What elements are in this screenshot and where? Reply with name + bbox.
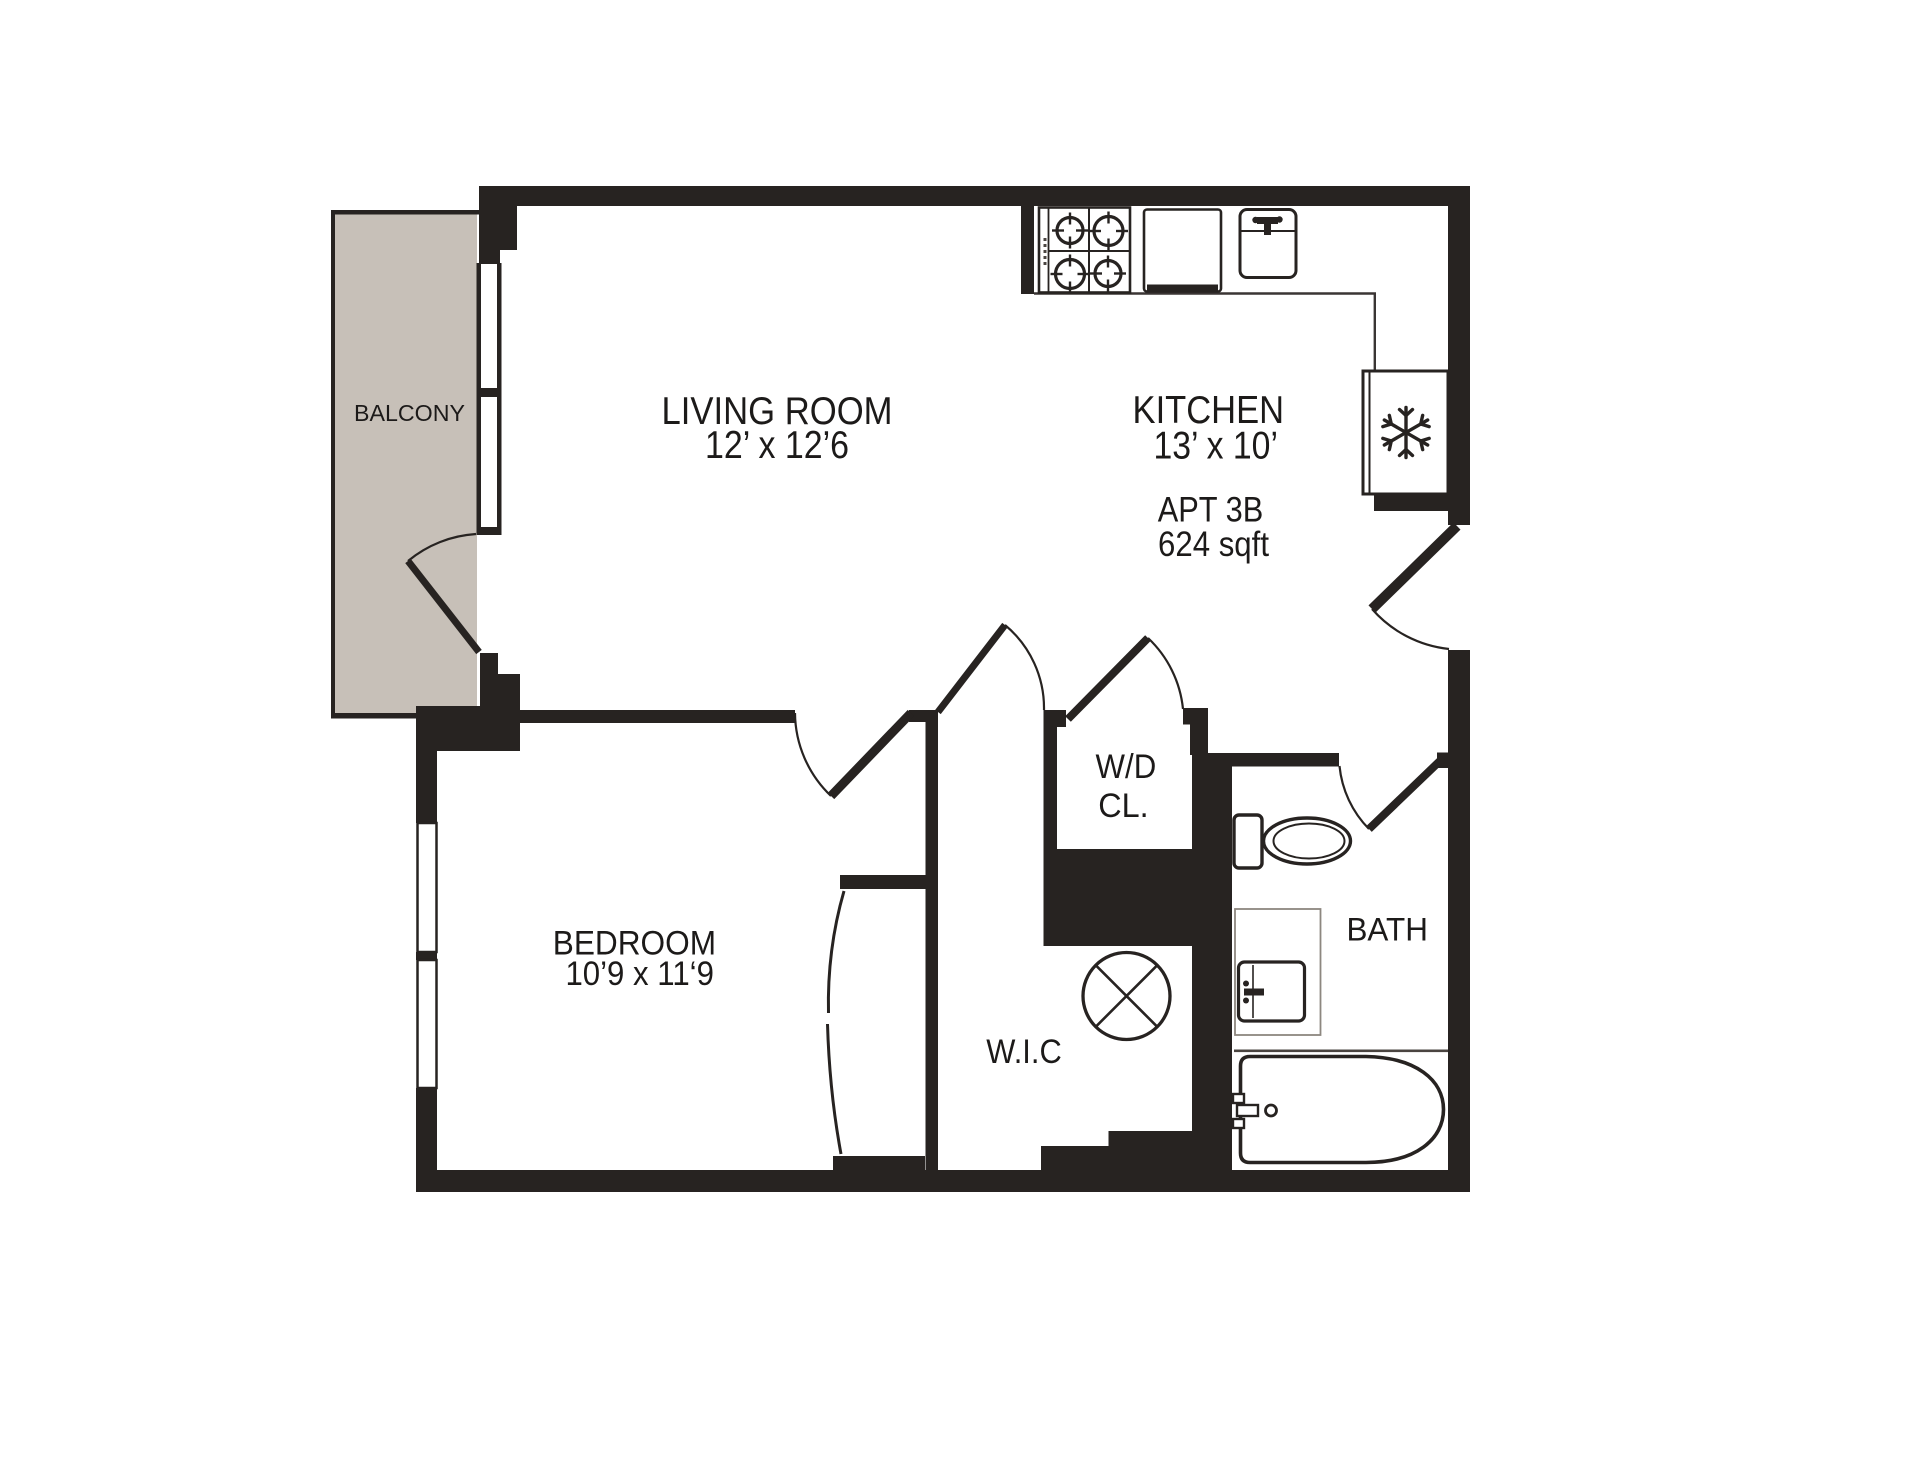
svg-text:CL.: CL. (1098, 787, 1148, 825)
svg-text:BALCONY: BALCONY (354, 400, 465, 426)
svg-text:BATH: BATH (1346, 912, 1428, 948)
svg-text:W.I.C: W.I.C (986, 1033, 1062, 1071)
svg-text:624 sqft: 624 sqft (1158, 524, 1269, 564)
svg-text:12’ x 12’6: 12’ x 12’6 (705, 424, 849, 467)
svg-text:W/D: W/D (1096, 748, 1157, 786)
svg-text:13’ x 10’: 13’ x 10’ (1153, 425, 1278, 468)
svg-text:10’9 x 11‘9: 10’9 x 11‘9 (565, 955, 714, 993)
